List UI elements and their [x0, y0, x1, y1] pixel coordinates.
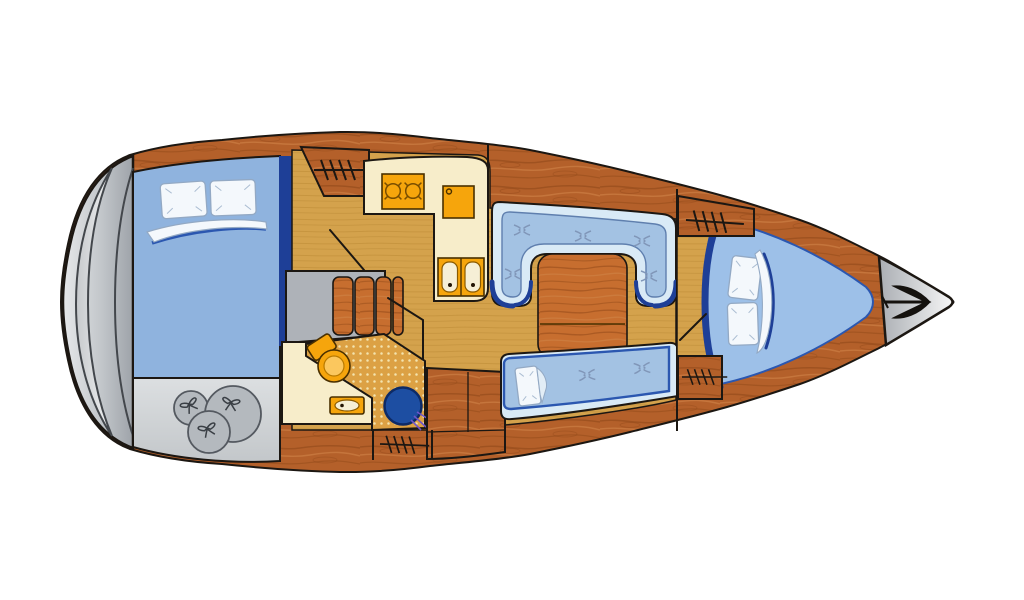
wardrobe-fwd-bottom [678, 356, 727, 399]
washbasin [330, 397, 364, 414]
stove [382, 174, 424, 209]
companionway-step [355, 277, 374, 335]
aft-pillow-left [160, 181, 207, 219]
double-sink [438, 258, 484, 296]
cabinet-mid [427, 368, 505, 459]
saloon-table [538, 254, 627, 358]
fwd-pillow-bottom [727, 302, 758, 345]
sink-basin-left [442, 262, 458, 292]
shower-drain-basin [385, 388, 422, 425]
stern-platform [63, 156, 133, 448]
cabinet-mid-body [427, 368, 505, 459]
companionway [286, 271, 403, 343]
sink-drain [448, 283, 452, 287]
yacht-floor-plan-screenshot [0, 0, 1024, 600]
anchor-locker [879, 257, 953, 345]
yacht-floor-plan [0, 0, 1024, 600]
washbasin-bowl [335, 400, 359, 411]
icebox [443, 186, 474, 218]
aft-berth [133, 156, 280, 378]
aft-cabin [133, 156, 280, 378]
aft-stowage [133, 378, 280, 462]
table-top [538, 254, 627, 358]
washbasin-drain [340, 404, 344, 408]
sink-drain [471, 283, 475, 287]
companionway-step [376, 277, 391, 335]
sail-bag-medium [188, 411, 230, 453]
companionway-step [333, 277, 353, 335]
toilet-bowl-inner [324, 356, 344, 376]
sink-basin-right [465, 262, 481, 292]
aft-pillow-right [210, 179, 256, 216]
